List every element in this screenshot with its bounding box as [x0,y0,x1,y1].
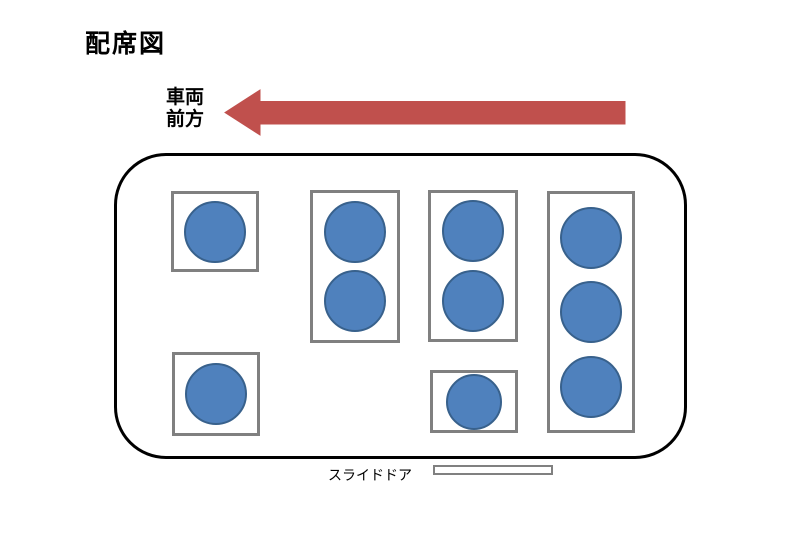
seat-group-front-lower-single [172,352,260,436]
seat [324,201,386,263]
sliding-door-indicator [433,465,553,475]
seat-group-front-upper-single [171,191,259,272]
seat [185,363,247,425]
seat-group-second-row-double [310,190,400,343]
seat-layer [0,0,800,540]
seat [446,374,502,430]
seat [442,200,504,262]
seat [324,270,386,332]
seat-group-third-row-lower-single [430,370,518,433]
seat [560,281,622,343]
seat-group-rear-bench-triple [547,191,635,433]
seat [442,270,504,332]
sliding-door-label: スライドドア [328,465,412,485]
seat [184,201,246,263]
seat [560,356,622,418]
seating-diagram-canvas: 配席図 車両 前方 スライドドア [0,0,800,540]
seat-group-third-row-upper-double [428,190,518,342]
seat [560,207,622,269]
